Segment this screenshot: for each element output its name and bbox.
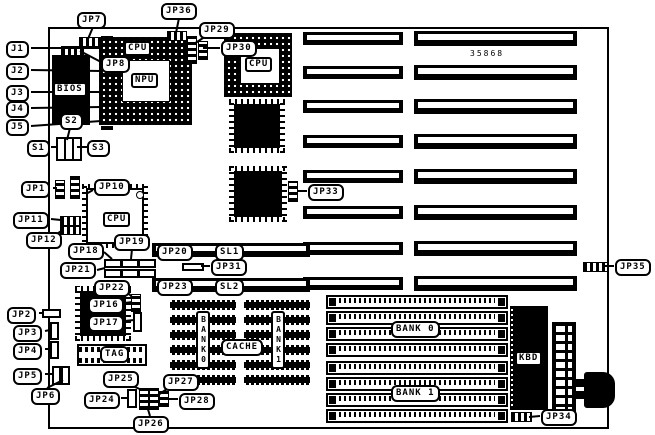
callout-jp35: JP35 [615,259,651,276]
callout-jp28: JP28 [179,393,215,410]
isa-slot-1-left [303,32,403,45]
callout-jp5: JP5 [13,368,42,385]
cache-chip-row [244,375,310,385]
keyboard-din-connector [584,372,615,408]
callout-jp34: JP34 [541,409,577,426]
jumper-block-1b [104,269,122,278]
jumper-jp16 [131,294,141,312]
jumper-cluster-a [139,388,149,410]
jumper-block-2b [121,269,139,278]
isa-slot-7-right [414,241,577,256]
chipset-qfp-1 [229,99,285,153]
cpu-qfp-label: CPU [103,212,130,227]
simm-socket [326,409,508,423]
callout-jp33: JP33 [308,184,344,201]
callout-tag: TAG [100,346,129,363]
callout-jp21: JP21 [60,262,96,279]
jumper-block-1a [104,259,122,268]
isa-slot-3-left [303,100,403,113]
bios-label: BIOS [53,82,87,97]
callout-s1: S1 [27,140,50,157]
isa-slot-3-right [414,99,577,114]
jumper-jp34 [511,412,532,422]
jumper-jp24 [127,389,137,408]
callout-jp26: JP26 [133,416,169,433]
callout-jp17: JP17 [88,315,124,332]
callout-jp27: JP27 [163,374,199,391]
callout-jp16: JP16 [88,297,124,314]
chipset-qfp-2 [229,166,287,222]
callout-jp20: JP20 [157,244,193,261]
jumper-jp17 [133,312,142,332]
jumper-jp12 [60,226,81,235]
callout-jp29: JP29 [199,22,235,39]
jumper-jp6 [61,366,70,385]
callout-s2: S2 [60,113,83,130]
cpu2-socket-label: CPU [245,57,272,72]
jumper-jp28 [159,391,169,407]
jumper-jp35 [583,262,608,272]
jumper-jp11 [60,216,81,226]
jumper-jp1-a [55,180,65,199]
jumper-jp36 [167,31,187,41]
callout-jp10: JP10 [94,179,130,196]
jumper-jp30 [198,41,208,60]
callout-jp4: JP4 [13,343,42,360]
board-part-number: 35868 [470,49,504,58]
cache-label: CACHE [221,339,263,356]
isa-slot-7-left [303,242,403,255]
callout-jp22: JP22 [94,280,130,297]
isa-slot-2-left [303,66,403,79]
din-connector-tab [576,391,584,399]
dip-switch-3 [72,137,82,161]
isa-slot-4-left [303,135,403,148]
isa-slot-2-right [414,65,577,80]
simm-socket [326,295,508,309]
callout-jp7: JP7 [77,12,106,29]
simm-socket [326,343,508,357]
cache-bank1-label: BANK1 [271,311,285,369]
callout-jp6: JP6 [31,388,60,405]
isa-slot-6-right [414,205,577,220]
callout-s3: S3 [87,140,110,157]
callout-jp8: JP8 [101,56,130,73]
isa-slot-8-right [414,276,577,291]
jumper-jp3 [50,322,59,340]
callout-j3: J3 [6,85,29,102]
jumper-jp29 [187,36,197,64]
callout-jp2: JP2 [7,307,36,324]
jumper-jp1-b [70,176,80,199]
callout-jp23: JP23 [157,279,193,296]
callout-j4: J4 [6,101,29,118]
cpu-socket-label: CPU [124,41,151,56]
jumper-jp8 [61,46,84,56]
callout-jp11: JP11 [13,212,49,229]
isa-slot-5-left [303,170,403,183]
cache-chip-row [170,300,236,310]
isa-slot-8-left [303,277,403,290]
jumper-block-3a [138,259,156,268]
jumper-jp4 [50,341,59,359]
npu-label: NPU [131,73,158,88]
callout-jp3: JP3 [13,325,42,342]
motherboard-diagram: J1 J2 J3 J4 J5 BIOS S1 S2 S3 JP7 JP8 JP3… [0,0,655,435]
cache-chip-row [244,300,310,310]
power-connector [552,322,576,414]
callout-jp19: JP19 [114,234,150,251]
jumper-jp2 [42,309,61,318]
isa-slot-6-left [303,206,403,219]
callout-jp36: JP36 [161,3,197,20]
jumper-block-3b [138,269,156,278]
callout-jp31: JP31 [211,259,247,276]
simm-socket [326,361,508,375]
cpu-qfp-pin1-dot [136,191,144,199]
jumper-cluster-b [149,388,159,410]
callout-jp12: JP12 [26,232,62,249]
jumper-jp33 [288,181,298,202]
callout-jp25: JP25 [103,371,139,388]
isa-slot-4-right [414,134,577,149]
callout-sl2: SL2 [215,279,244,296]
callout-jp30: JP30 [221,40,257,57]
callout-jp1: JP1 [21,181,50,198]
jumper-block-2a [121,259,139,268]
jumper-jp5 [52,366,61,385]
jumper-jp31 [182,263,204,271]
callout-j5: J5 [6,119,29,136]
callout-jp18: JP18 [68,243,104,260]
isa-slot-5-right [414,169,577,184]
kbd-label: KBD [515,351,542,366]
callout-jp24: JP24 [84,392,120,409]
callout-j1: J1 [6,41,29,58]
cache-bank0-label: BANK0 [196,311,210,369]
simm-bank0-label: BANK 0 [391,321,440,338]
callout-j2: J2 [6,63,29,80]
isa-slot-1-right [414,31,577,46]
simm-bank1-label: BANK 1 [391,385,440,402]
din-connector-tab [576,379,584,387]
